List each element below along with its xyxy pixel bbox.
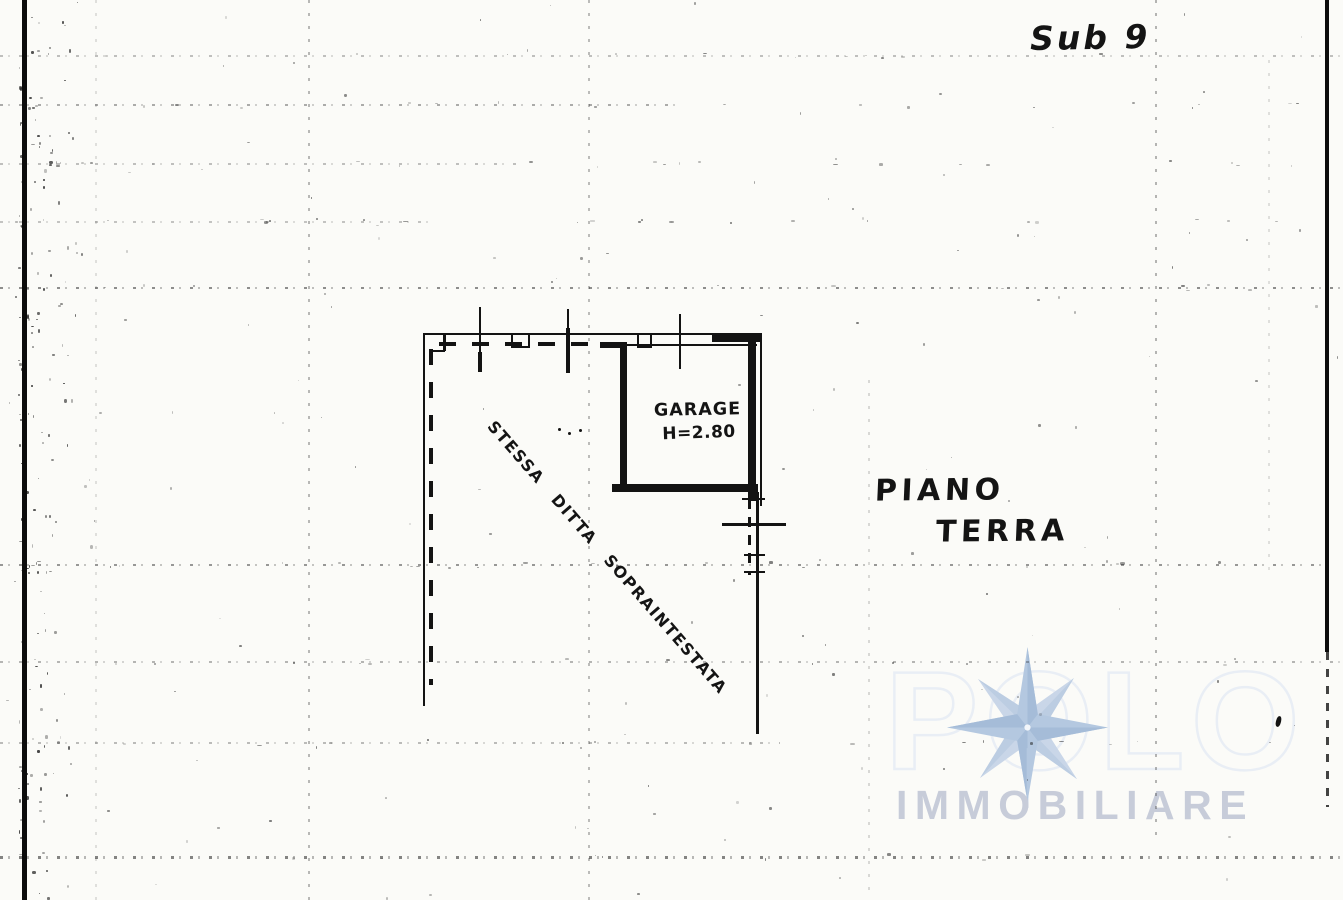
noise-speck	[694, 2, 696, 4]
noise-speck	[489, 533, 492, 534]
noise-speck	[691, 621, 693, 623]
noise-speck	[590, 220, 594, 221]
noise-speck	[124, 319, 127, 321]
noise-speck	[99, 412, 102, 415]
noise-speck	[170, 487, 172, 490]
noise-speck	[356, 53, 358, 55]
noise-speck	[32, 107, 34, 109]
noise-speck	[408, 102, 411, 103]
noise-speck	[861, 767, 863, 770]
noise-speck	[625, 702, 627, 705]
noise-speck	[40, 787, 42, 790]
noise-speck	[293, 62, 295, 64]
noise-speck	[800, 112, 801, 115]
noise-line-horizontal	[0, 856, 1343, 859]
scanned-floorplan-page: POLO IMMOBILIARE	[0, 0, 1343, 900]
noise-speck	[19, 720, 20, 724]
noise-speck	[606, 253, 609, 254]
noise-speck	[67, 355, 69, 356]
boundary-tick	[742, 498, 765, 500]
noise-line-horizontal	[0, 661, 1343, 663]
noise-speck	[31, 332, 32, 334]
ink-dot	[568, 432, 571, 435]
noise-speck	[1030, 742, 1033, 744]
noise-speck	[174, 691, 176, 692]
noise-speck	[1315, 305, 1317, 307]
noise-speck	[850, 743, 854, 745]
noise-speck	[1025, 854, 1030, 856]
noise-speck	[638, 221, 640, 223]
survey-line-bold	[566, 328, 570, 373]
noise-speck	[75, 242, 77, 245]
noise-speck	[1189, 232, 1190, 234]
noise-speck	[196, 760, 198, 762]
noise-speck	[986, 593, 988, 594]
noise-speck	[986, 164, 990, 166]
grid-line-vertical	[1268, 60, 1270, 580]
noise-speck	[269, 820, 272, 822]
noise-speck	[39, 801, 42, 802]
noise-speck	[577, 222, 578, 223]
noise-speck	[31, 252, 34, 255]
noise-speck	[845, 56, 849, 57]
noise-speck	[298, 380, 299, 381]
noise-speck	[49, 515, 51, 518]
noise-speck	[879, 163, 883, 165]
noise-speck	[186, 840, 187, 843]
noise-speck	[274, 412, 275, 414]
noise-speck	[1288, 103, 1292, 105]
noise-speck	[765, 858, 766, 860]
noise-speck	[90, 545, 93, 549]
survey-line-bold	[478, 352, 482, 372]
noise-speck	[48, 250, 51, 252]
noise-speck	[63, 383, 65, 385]
noise-speck	[31, 565, 35, 567]
noise-speck	[35, 105, 37, 107]
noise-speck	[835, 158, 837, 160]
noise-speck	[852, 208, 854, 210]
noise-speck	[42, 852, 45, 854]
garage-wall-right	[748, 334, 756, 501]
noise-speck	[155, 884, 156, 885]
noise-speck	[1218, 561, 1221, 563]
room-height-label: H=2.80	[657, 422, 742, 445]
noise-speck	[679, 162, 680, 165]
noise-speck	[282, 422, 283, 424]
noise-line-horizontal	[0, 742, 780, 744]
noise-speck	[54, 631, 57, 634]
noise-line-horizontal	[0, 163, 520, 165]
noise-speck	[240, 107, 243, 109]
noise-speck	[40, 684, 42, 688]
noise-speck	[1034, 236, 1035, 237]
noise-speck	[355, 466, 356, 468]
noise-speck	[311, 197, 312, 199]
noise-speck	[37, 750, 40, 753]
noise-speck	[881, 57, 884, 59]
noise-speck	[480, 19, 481, 21]
noise-speck	[257, 745, 262, 747]
plan-boundary-right-lower	[756, 492, 759, 734]
grid-line-vertical	[95, 0, 97, 900]
noise-speck	[368, 663, 373, 665]
noise-speck	[754, 181, 755, 183]
noise-speck	[766, 694, 768, 697]
noise-speck	[45, 515, 47, 518]
noise-speck	[529, 161, 533, 163]
grid-line-vertical	[588, 0, 590, 900]
boundary-tick	[744, 571, 765, 573]
plan-boundary-right-thin	[760, 334, 762, 506]
noise-speck	[52, 354, 54, 356]
noise-speck	[983, 740, 984, 743]
noise-speck	[35, 666, 38, 667]
noise-speck	[760, 315, 763, 316]
noise-speck	[107, 810, 110, 811]
noise-speck	[399, 165, 401, 167]
noise-speck	[64, 693, 65, 696]
noise-speck	[410, 566, 413, 567]
noise-speck	[62, 344, 63, 346]
noise-speck	[154, 663, 156, 665]
noise-speck	[64, 80, 66, 81]
noise-speck	[477, 567, 479, 568]
noise-speck	[34, 181, 37, 183]
noise-speck	[1106, 560, 1108, 563]
noise-speck	[1337, 356, 1338, 359]
noise-speck	[34, 659, 35, 661]
noise-speck	[1301, 36, 1302, 38]
floor-label-line1: PIANO	[874, 472, 1005, 508]
noise-speck	[833, 164, 838, 165]
noise-speck	[580, 747, 581, 749]
noise-speck	[749, 742, 752, 744]
noise-speck	[40, 591, 42, 592]
noise-speck	[43, 820, 45, 823]
noise-speck	[594, 106, 597, 107]
noise-speck	[39, 146, 40, 148]
noise-speck	[28, 318, 30, 321]
noise-speck	[329, 742, 332, 744]
noise-speck	[493, 257, 495, 259]
noise-speck	[38, 22, 40, 24]
noise-speck	[31, 326, 34, 327]
noise-speck	[39, 810, 42, 812]
noise-speck	[6, 700, 8, 702]
noise-speck	[43, 288, 45, 291]
noise-speck	[769, 561, 773, 563]
noise-line-horizontal	[0, 287, 1343, 289]
noise-speck	[819, 559, 821, 561]
noise-speck	[448, 567, 451, 570]
noise-speck	[32, 385, 34, 387]
noise-speck	[76, 252, 78, 255]
noise-speck	[60, 736, 61, 739]
noise-speck	[705, 562, 708, 564]
noise-speck	[1169, 160, 1173, 162]
noise-speck	[107, 220, 109, 221]
noise-speck	[45, 629, 47, 632]
noise-speck	[1132, 102, 1135, 104]
noise-speck	[219, 618, 220, 619]
noise-speck	[49, 47, 51, 49]
noise-speck	[37, 272, 39, 275]
noise-speck	[828, 198, 830, 200]
noise-speck	[115, 663, 118, 665]
noise-line-horizontal	[0, 564, 1330, 566]
noise-speck	[825, 644, 826, 647]
noise-speck	[575, 826, 576, 829]
noise-speck	[260, 219, 264, 220]
noise-speck	[1227, 220, 1231, 222]
noise-line-horizontal	[0, 221, 430, 223]
noise-speck	[31, 51, 34, 54]
noise-speck	[597, 166, 598, 168]
noise-speck	[43, 179, 45, 181]
noise-speck	[18, 788, 20, 789]
noise-speck	[1246, 239, 1248, 241]
noise-speck	[33, 509, 36, 511]
noise-speck	[46, 571, 47, 574]
sub-number-label: Sub 9	[1030, 17, 1151, 58]
noise-speck	[1228, 836, 1231, 838]
plan-boundary-left	[423, 333, 425, 706]
noise-speck	[84, 485, 87, 488]
noise-speck	[27, 783, 29, 784]
noise-speck	[1120, 562, 1125, 564]
diagonal-annotation: STESSA DITTA SOPRAINTESTATA	[484, 417, 732, 698]
noise-speck	[1236, 165, 1240, 166]
noise-speck	[75, 314, 77, 317]
noise-speck	[217, 827, 220, 828]
noise-speck	[28, 107, 31, 111]
noise-speck	[60, 303, 63, 305]
noise-speck	[39, 893, 40, 894]
noise-speck	[1217, 680, 1219, 683]
noise-speck	[51, 459, 54, 462]
noise-speck	[1310, 856, 1312, 858]
noise-speck	[143, 284, 145, 286]
noise-speck	[33, 415, 34, 417]
noise-speck	[56, 719, 58, 722]
noise-speck	[730, 222, 732, 223]
noise-speck	[19, 215, 20, 217]
opening-notch	[511, 333, 530, 348]
noise-speck	[769, 807, 772, 810]
noise-speck	[49, 571, 52, 572]
noise-speck	[225, 16, 226, 18]
grid-line-vertical	[308, 0, 310, 900]
noise-speck	[911, 552, 914, 554]
noise-speck	[923, 343, 925, 346]
noise-speck	[429, 894, 432, 896]
noise-line-horizontal	[0, 104, 680, 106]
noise-speck	[562, 742, 564, 744]
boundary-dashes-right	[748, 499, 751, 575]
left-scan-edge	[22, 0, 27, 900]
noise-speck	[18, 394, 19, 396]
noise-speck	[45, 735, 48, 739]
noise-speck	[30, 208, 32, 211]
noise-speck	[9, 402, 10, 404]
noise-speck	[19, 67, 20, 69]
noise-speck	[1033, 107, 1035, 108]
noise-speck	[615, 53, 617, 54]
noise-speck	[1181, 285, 1184, 287]
noise-speck	[791, 220, 795, 222]
noise-speck	[483, 408, 484, 411]
noise-speck	[523, 562, 528, 564]
noise-speck	[37, 312, 39, 316]
noise-speck	[143, 105, 145, 107]
noise-speck	[32, 871, 35, 875]
noise-speck	[70, 763, 72, 765]
noise-speck	[982, 859, 986, 861]
noise-speck	[44, 169, 47, 173]
boundary-tick	[744, 554, 765, 556]
noise-speck	[48, 434, 49, 437]
noise-speck	[37, 50, 40, 52]
noise-speck	[1058, 296, 1060, 299]
noise-speck	[1231, 162, 1234, 164]
noise-speck	[56, 165, 60, 167]
noise-speck	[40, 708, 43, 712]
noise-speck	[1294, 725, 1295, 727]
noise-speck	[19, 830, 21, 834]
noise-speck	[37, 135, 40, 137]
noise-speck	[833, 388, 835, 391]
noise-speck	[28, 413, 30, 415]
noise-speck	[38, 329, 41, 333]
noise-speck	[81, 253, 83, 256]
noise-speck	[1075, 426, 1077, 428]
noise-speck	[1026, 566, 1028, 568]
noise-speck	[32, 738, 34, 740]
noise-speck	[1255, 380, 1258, 382]
noise-speck	[624, 734, 626, 735]
noise-speck	[172, 411, 173, 414]
noise-speck	[1203, 661, 1207, 663]
noise-speck	[1027, 221, 1030, 223]
noise-speck	[653, 161, 657, 163]
noise-speck	[28, 572, 30, 574]
noise-speck	[887, 853, 891, 855]
garage-wall-bottom	[612, 484, 758, 492]
noise-speck	[1039, 713, 1042, 716]
noise-speck	[44, 745, 45, 748]
noise-speck	[478, 489, 481, 491]
noise-speck	[1234, 658, 1236, 660]
noise-speck	[89, 479, 91, 481]
noise-speck	[321, 417, 323, 418]
noise-speck	[738, 384, 740, 386]
noise-speck	[223, 65, 224, 67]
noise-speck	[49, 164, 52, 166]
noise-speck	[1107, 536, 1108, 539]
noise-speck	[802, 567, 806, 568]
noise-speck	[35, 119, 36, 121]
noise-speck	[1052, 127, 1054, 128]
noise-speck	[331, 306, 332, 308]
noise-speck	[669, 221, 674, 223]
noise-speck	[50, 274, 52, 277]
noise-speck	[66, 794, 69, 797]
survey-line	[679, 314, 681, 369]
noise-speck	[344, 94, 347, 97]
noise-speck	[527, 49, 528, 52]
noise-speck	[58, 201, 60, 205]
noise-speck	[27, 287, 29, 289]
noise-speck	[62, 21, 64, 23]
noise-speck	[1059, 741, 1063, 742]
noise-speck	[1172, 266, 1173, 269]
noise-speck	[71, 399, 73, 403]
noise-speck	[46, 870, 48, 872]
noise-speck	[1291, 165, 1292, 167]
noise-speck	[356, 161, 360, 162]
noise-speck	[40, 97, 43, 99]
noise-speck	[316, 218, 318, 220]
noise-speck	[247, 142, 250, 143]
noise-speck	[551, 281, 553, 284]
noise-speck	[736, 801, 739, 804]
noise-speck	[1207, 284, 1210, 286]
noise-speck	[723, 104, 727, 105]
noise-speck	[64, 25, 65, 26]
noise-speck	[201, 169, 203, 171]
noise-speck	[813, 409, 814, 412]
noise-speck	[67, 885, 70, 889]
noise-speck	[556, 278, 557, 280]
noise-speck	[1119, 608, 1120, 610]
noise-speck	[19, 799, 21, 802]
noise-speck	[416, 566, 420, 567]
noise-speck	[1084, 547, 1086, 548]
noise-speck	[378, 237, 380, 240]
plan-wall-dashed-left	[429, 349, 433, 685]
noise-speck	[957, 250, 959, 251]
noise-speck	[29, 97, 32, 99]
noise-speck	[41, 432, 43, 433]
noise-speck	[901, 56, 905, 58]
garage-wall-left	[620, 342, 627, 491]
noise-speck	[37, 561, 40, 562]
noise-speck	[37, 633, 40, 634]
ink-dot	[558, 428, 561, 431]
garage-wall-top-thin	[627, 344, 757, 346]
noise-speck	[269, 220, 271, 222]
noise-speck	[77, 2, 78, 3]
noise-speck	[1017, 234, 1020, 237]
noise-speck	[39, 142, 41, 145]
noise-speck	[832, 673, 834, 676]
noise-speck	[50, 152, 53, 154]
noise-speck	[724, 839, 726, 841]
noise-speck	[44, 613, 45, 614]
noise-speck	[409, 523, 411, 526]
noise-speck	[72, 137, 74, 140]
noise-speck	[856, 322, 859, 324]
noise-speck	[839, 877, 841, 879]
noise-speck	[68, 746, 71, 750]
noise-speck	[862, 217, 865, 220]
noise-speck	[1184, 13, 1186, 16]
noise-speck	[31, 17, 33, 18]
noise-speck	[49, 135, 51, 138]
noise-speck	[1038, 424, 1041, 427]
noise-speck	[594, 741, 596, 743]
